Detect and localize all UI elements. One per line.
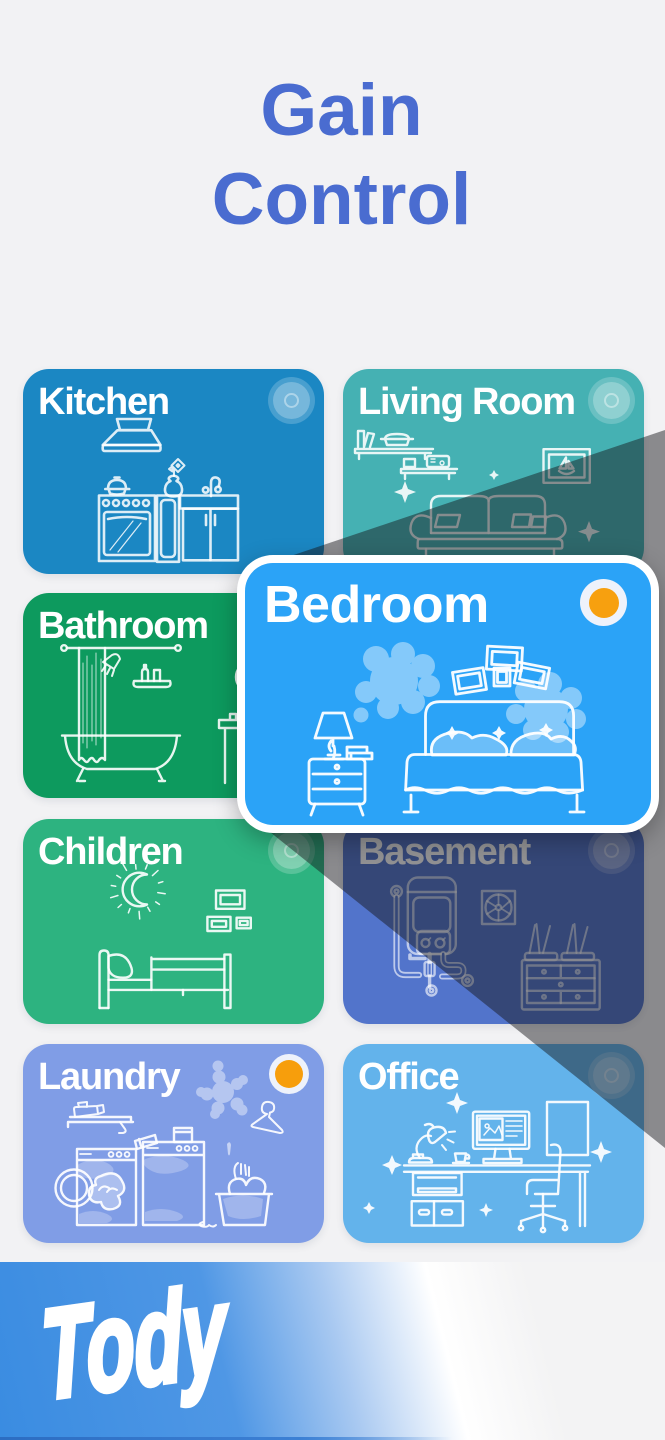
svg-text:Tody: Tody — [38, 1262, 233, 1427]
